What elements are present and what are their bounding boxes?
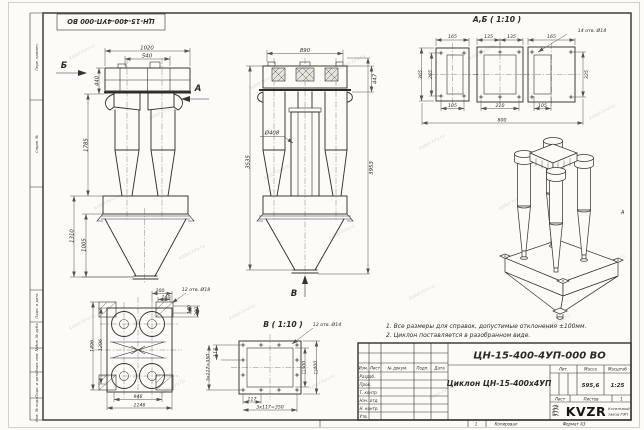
dim-label: 140	[162, 294, 171, 300]
margin-label: Подп. и дата	[35, 293, 39, 319]
tb-listov-label: Листов	[583, 397, 600, 402]
stamp-designation: ЦН-15-400-4УП-000 ВО	[67, 17, 155, 25]
margin-label: Перв. примен.	[35, 43, 39, 71]
dim-label: 105	[538, 103, 547, 109]
holes-note: 12 отв. Ø14	[313, 321, 341, 328]
dim-label: 3535	[246, 155, 252, 169]
dim-label: □300	[301, 361, 307, 374]
watermark-text: kotel-hrv.ru	[148, 103, 176, 122]
tb-row-label: Разраб.	[360, 374, 376, 379]
dim-label: 1146	[134, 403, 146, 409]
tb-header: Масса	[584, 367, 597, 372]
dim-label: 447	[373, 73, 379, 84]
iso-cyclone	[575, 155, 594, 262]
footer-format: Формат А3	[563, 422, 586, 427]
tb-scale-value: 1:25	[611, 383, 625, 389]
dim-label: 135	[484, 34, 493, 40]
kvzr-logo-coil-icon	[553, 406, 559, 417]
tb-col-header: № докум.	[387, 366, 408, 371]
dim-label: 265	[428, 70, 434, 79]
dim-label: 1005	[82, 238, 88, 252]
company-name: завод РЭП	[608, 413, 628, 417]
tb-row-label: Н. контр.	[360, 406, 379, 411]
tb-row-label: Нач. отд.	[360, 398, 379, 403]
tb-list-label: Лист	[554, 397, 566, 402]
tb-col-header: Дата	[433, 366, 445, 371]
watermark-text: kotel-hrv.ru	[68, 43, 96, 62]
dim-label: □400	[313, 361, 319, 374]
dim-label: 1310	[70, 229, 76, 243]
watermark-text: kotel-hrv.ru	[418, 133, 446, 152]
tb-row-label: Т. контр.	[360, 390, 379, 395]
dim-label: 165	[448, 34, 457, 40]
tb-listov-value: 1	[620, 397, 623, 402]
dim-label: 105	[448, 103, 457, 109]
zone-marker: А	[620, 210, 625, 216]
dim-label: 946	[134, 394, 143, 400]
watermark-text: kotel-hrv.ru	[308, 373, 336, 392]
dim-label: 325	[584, 70, 590, 79]
dim-label: 800	[498, 118, 507, 124]
watermark-text: kotel-hrv.ru	[588, 103, 616, 122]
tb-product-name: Циклон ЦН-15-400х4УП	[447, 379, 552, 388]
margin-label: Инв. № дубл.	[35, 322, 39, 347]
tb-row-label: Утв.	[360, 414, 368, 419]
watermark-text: kotel-hrv.ru	[408, 283, 436, 302]
tb-header: Масштаб	[608, 367, 628, 372]
holes-note: 12 отв. Ø18	[182, 286, 210, 293]
dim-label: 117	[213, 348, 219, 357]
tb-col-header: Изм.	[359, 366, 368, 371]
view-title: А,Б ( 1:10 )	[472, 15, 521, 24]
main-view: 890 447 3535 3953 Ø408 В	[246, 48, 379, 299]
tb-designation: ЦН-15-400-4УП-000 ВО	[473, 351, 606, 362]
tb-col-header: Лист	[369, 366, 381, 371]
margin-label: Подп. и дата	[35, 372, 39, 398]
dim-label: 140	[187, 305, 193, 314]
flange-view: В ( 1:10 ) □300 □400 117 3х117=350 117 3…	[206, 320, 342, 412]
dim-label: 540	[142, 54, 153, 60]
dim-label: 210	[496, 103, 505, 109]
margin-label: Взам. инв. №	[35, 347, 39, 372]
section-ab-view: А,Б ( 1:10 ) 165 135 135 165 365 265 325…	[418, 15, 606, 125]
margin-label: Справ. №	[35, 135, 39, 153]
footer-sheet-no: 1	[475, 422, 478, 427]
top-view: 200 140 140 200 1496 1296 946 1146 12 от…	[90, 286, 211, 410]
dim-label: 200	[194, 307, 200, 316]
watermark-text: kotel-hrv.ru	[178, 243, 206, 262]
dim-label: 1296	[98, 339, 104, 351]
view-arrow-label-v: В	[291, 289, 297, 299]
notes: 1. Все размеры для справок, допустимые о…	[386, 323, 586, 339]
dim-label: 117	[248, 397, 257, 403]
dim-label: 3953	[369, 161, 375, 175]
dim-label: 165	[547, 34, 556, 40]
margin-label: Инв. № подл.	[35, 396, 39, 421]
tb-header: Лит.	[558, 367, 568, 372]
dim-label: 1020	[140, 46, 154, 52]
dim-label: 3х117=350	[206, 354, 212, 382]
dim-label: 135	[507, 34, 516, 40]
footer-row: 1 Копировал Формат А3	[475, 422, 586, 427]
logo-text: KVZR	[566, 404, 606, 419]
tb-row-label: Пров.	[360, 382, 372, 387]
title-block: Изм. Лист № докум. Подп. Дата Разраб. Пр…	[358, 343, 631, 420]
holes-note: 14 отв. Ø14	[578, 27, 606, 34]
view-arrow-label-a: А	[194, 84, 202, 94]
isometric-view	[500, 138, 623, 320]
iso-cyclone	[515, 151, 534, 260]
company-name: Котельный	[608, 407, 630, 411]
watermark-text: kotel-hrv.ru	[338, 53, 366, 72]
note-line: 1. Все размеры для справок, допустимые о…	[386, 323, 586, 330]
dim-label: 440	[95, 75, 101, 86]
view-arrow-label-b: Б	[61, 61, 68, 71]
tb-col-header: Подп.	[416, 366, 428, 371]
tb-mass-value: 595,6	[582, 383, 600, 389]
dim-label: 1785	[84, 138, 90, 152]
dim-label: 200	[156, 288, 165, 294]
watermark-text: kotel-hrv.ru	[68, 313, 96, 332]
view-title: В ( 1:10 )	[263, 320, 303, 329]
dim-label: 890	[300, 48, 311, 54]
drawing-canvas: kotel-hrv.ru kotel-hrv.ru kotel-hrv.ru k…	[0, 0, 644, 430]
front-view: 1020 540 440 1785 1310 1005 Б А	[56, 46, 209, 285]
dim-label: 365	[418, 70, 424, 79]
drawing-sheet: kotel-hrv.ru kotel-hrv.ru kotel-hrv.ru k…	[0, 0, 644, 430]
dim-label: 3х117=350	[256, 405, 284, 411]
top-stamp: ЦН-15-400-4УП-000 ВО	[57, 14, 165, 30]
dim-label: 1496	[90, 340, 96, 352]
watermark-text: kotel-hrv.ru	[228, 303, 256, 322]
note-line: 2. Циклон поставляется в разобранном вид…	[386, 332, 530, 339]
dim-label: Ø408	[264, 130, 280, 137]
footer-copied: Копировал	[495, 422, 518, 427]
